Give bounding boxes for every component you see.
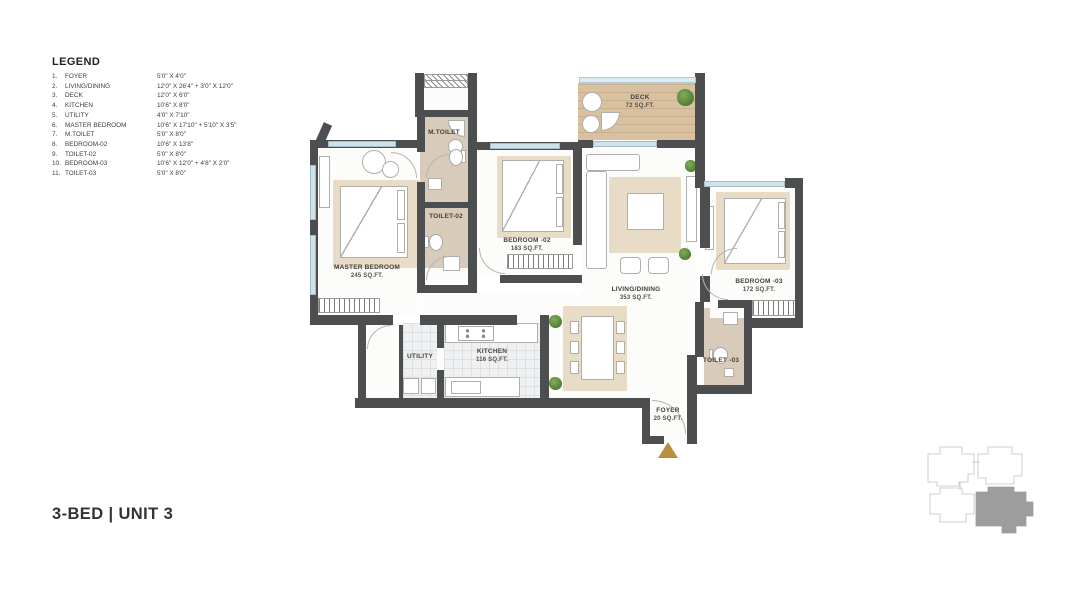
room-name: DECK (630, 94, 649, 101)
legend-num: 5. (52, 111, 65, 121)
utility-sink (403, 378, 419, 394)
bedroom-02-pillow (556, 197, 563, 227)
wall (795, 180, 803, 328)
legend-row: 10.BEDROOM-0310'6" X 12'0" + 4'8" X 2'0" (52, 159, 237, 169)
legend-dims: 12'0" X 6'0" (157, 91, 237, 101)
key-plan-unit-highlighted (976, 487, 1033, 533)
wall (690, 385, 752, 394)
legend-row: 7.M.TOILET5'0" X 8'0" (52, 130, 237, 140)
dining-plant (549, 315, 562, 328)
legend-num: 6. (52, 121, 65, 131)
master-bed-duvet (340, 186, 382, 258)
label-living-dining: LIVING/DINING353 SQ.FT. (612, 285, 661, 302)
room-name: M.TOILET (428, 129, 460, 136)
room-name: TOILET-02 (429, 213, 463, 220)
room-area: 20 SQ.FT. (654, 415, 683, 423)
dining-chair (616, 341, 625, 354)
label-master-bedroom: MASTER BEDROOM245 SQ.FT. (334, 263, 400, 280)
legend-dims: 10'6" X 8'0" (157, 101, 237, 111)
legend-row: 8.BEDROOM-0210'6" X 13'8" (52, 140, 237, 150)
legend-dims: 5'0" X 4'0" (157, 72, 237, 82)
wall (417, 182, 425, 285)
entry-arrow (658, 442, 678, 458)
kitchen-hob (458, 326, 494, 341)
room-area: 183 SQ.FT. (503, 245, 550, 253)
legend-name: FOYER (65, 72, 157, 82)
room-name: TOILET -03 (703, 357, 739, 364)
wall (420, 315, 517, 325)
legend-dims: 10'6" X 13'8" (157, 140, 237, 150)
armchair (648, 257, 669, 274)
wall (310, 315, 393, 325)
dining-chair (570, 361, 579, 374)
room-name: MASTER BEDROOM (334, 264, 400, 271)
room-name: KITCHEN (477, 348, 507, 355)
legend-num: 10. (52, 159, 65, 169)
sofa-top (586, 154, 640, 171)
legend-name: BEDROOM-03 (65, 159, 157, 169)
label-bedroom-02: BEDROOM -02183 SQ.FT. (503, 236, 550, 253)
legend-dims: 4'0" X 7'10" (157, 111, 237, 121)
legend-name: DECK (65, 91, 157, 101)
bedroom-03-window (704, 181, 785, 187)
legend-row: 6.MASTER BEDROOM10'6" X 17'10" + 5'10" X… (52, 121, 237, 131)
label-bedroom-03: BEDROOM -03172 SQ.FT. (735, 277, 782, 294)
room-area: 245 SQ.FT. (334, 272, 400, 280)
wall (687, 355, 697, 444)
label-kitchen: KITCHEN116 SQ.FT. (476, 347, 508, 364)
legend-name: MASTER BEDROOM (65, 121, 157, 131)
label-toilet-02: TOILET-02 (429, 212, 463, 221)
wall (417, 110, 425, 152)
legend-num: 9. (52, 150, 65, 160)
room-area: 172 SQ.FT. (735, 286, 782, 294)
m-toilet-basin (428, 178, 442, 190)
master-bed-pillow (397, 190, 405, 220)
wall (358, 318, 366, 403)
dining-plant (549, 377, 562, 390)
legend-dims: 10'6" X 17'10" + 5'10" X 3'5" (157, 121, 237, 131)
legend-name: M.TOILET (65, 130, 157, 140)
legend-num: 3. (52, 91, 65, 101)
legend-num: 11. (52, 169, 65, 179)
wall (578, 140, 593, 148)
label-foyer: FOYER20 SQ.FT. (654, 406, 683, 423)
coffee-table (627, 193, 664, 230)
room-name: LIVING/DINING (612, 286, 661, 293)
wall (748, 318, 803, 328)
wall (437, 323, 444, 348)
legend-num: 4. (52, 101, 65, 111)
legend-name: BEDROOM-02 (65, 140, 157, 150)
legend-dims: 10'6" X 12'0" + 4'8" X 2'0" (157, 159, 237, 169)
legend-name: LIVING/DINING (65, 82, 157, 92)
legend-row: 11.TOILET-035'0" X 8'0" (52, 169, 237, 179)
wall (468, 73, 477, 285)
wall (399, 325, 403, 398)
bedroom-03-wardrobe (752, 300, 796, 316)
key-plan (920, 432, 1055, 542)
bedroom-02-pillow (556, 164, 563, 194)
legend-name: TOILET-02 (65, 150, 157, 160)
master-wardrobe (318, 298, 380, 313)
legend-row: 9.TOILET-025'0" X 8'0" (52, 150, 237, 160)
washing-machine (421, 378, 436, 394)
wall (695, 73, 705, 188)
legend-name: TOILET-03 (65, 169, 157, 179)
wall (437, 370, 444, 400)
legend-dims: 12'0" X 26'4" + 3'0" X 12'0" (157, 82, 237, 92)
shaft-top-hatch (424, 74, 468, 81)
wall (355, 398, 642, 408)
label-m-toilet: M.TOILET (428, 128, 460, 137)
master-bed-pillow (397, 223, 405, 253)
legend-dims: 5'0" X 8'0" (157, 169, 237, 179)
dining-chair (616, 321, 625, 334)
master-dresser (319, 156, 330, 208)
room-name: BEDROOM -03 (735, 278, 782, 285)
master-left-window (310, 165, 316, 220)
label-utility: UTILITY (407, 352, 433, 361)
room-name: FOYER (656, 407, 679, 414)
kitchen-sink (451, 381, 481, 394)
legend-row: 4.KITCHEN10'6" X 8'0" (52, 101, 237, 111)
deck-sliding-door (593, 141, 657, 147)
legend-name: KITCHEN (65, 101, 157, 111)
master-left-window (310, 235, 316, 295)
room-name: BEDROOM -02 (503, 237, 550, 244)
bedroom-03-pillow (778, 202, 785, 229)
bedroom-02-window (490, 143, 560, 149)
key-plan-unit (978, 447, 1022, 484)
key-plan-unit (930, 488, 974, 522)
key-plan-unit (928, 447, 974, 486)
deck-plant (677, 89, 694, 106)
unit-title: 3-BED | UNIT 3 (52, 505, 173, 524)
legend-num: 2. (52, 82, 65, 92)
label-toilet-03: TOILET -03 (703, 356, 739, 365)
wall (425, 202, 468, 208)
toilet-03-basin (723, 312, 738, 325)
wall (695, 302, 704, 357)
toilet-03-fixture (724, 368, 734, 377)
key-plan-svg (920, 432, 1055, 537)
legend-num: 1. (52, 72, 65, 82)
armchair (620, 257, 641, 274)
living-plant (679, 248, 691, 260)
master-top-window (328, 141, 396, 147)
legend-dims: 5'0" X 8'0" (157, 130, 237, 140)
deck-chair (582, 115, 600, 133)
dining-chair (616, 361, 625, 374)
deck-railing (579, 77, 696, 83)
legend: LEGEND 1.FOYER5'0" X 4'0" 2.LIVING/DININ… (52, 56, 237, 179)
dining-table (581, 316, 614, 380)
floor-plan: MASTER BEDROOM245 SQ.FT. M.TOILET TOILET… (300, 60, 812, 465)
wall (540, 315, 549, 400)
legend-title: LEGEND (52, 56, 237, 68)
wall (657, 140, 695, 148)
wall (573, 148, 582, 245)
legend-num: 7. (52, 130, 65, 140)
legend-row: 1.FOYER5'0" X 4'0" (52, 72, 237, 82)
dining-chair (570, 321, 579, 334)
label-deck: DECK72 SQ.FT. (626, 93, 655, 110)
room-area: 353 SQ.FT. (612, 294, 661, 302)
legend-row: 5.UTILITY4'0" X 7'10" (52, 111, 237, 121)
sofa-left (586, 171, 607, 269)
wall (500, 275, 582, 283)
legend-num: 8. (52, 140, 65, 150)
bedroom-02-bed-duvet (502, 160, 540, 232)
legend-row: 3.DECK12'0" X 6'0" (52, 91, 237, 101)
room-name: UTILITY (407, 353, 433, 360)
bedroom-03-pillow (778, 231, 785, 258)
legend-name: UTILITY (65, 111, 157, 121)
wall (417, 285, 477, 293)
bedroom-02-wardrobe (507, 254, 573, 269)
dining-chair (570, 341, 579, 354)
legend-dims: 5'0" X 8'0" (157, 150, 237, 160)
wall (700, 186, 710, 248)
deck-chair (582, 92, 602, 112)
legend-row: 2.LIVING/DINING12'0" X 26'4" + 3'0" X 12… (52, 82, 237, 92)
room-area: 116 SQ.FT. (476, 356, 508, 364)
wall (744, 302, 752, 390)
room-area: 72 SQ.FT. (626, 102, 655, 110)
